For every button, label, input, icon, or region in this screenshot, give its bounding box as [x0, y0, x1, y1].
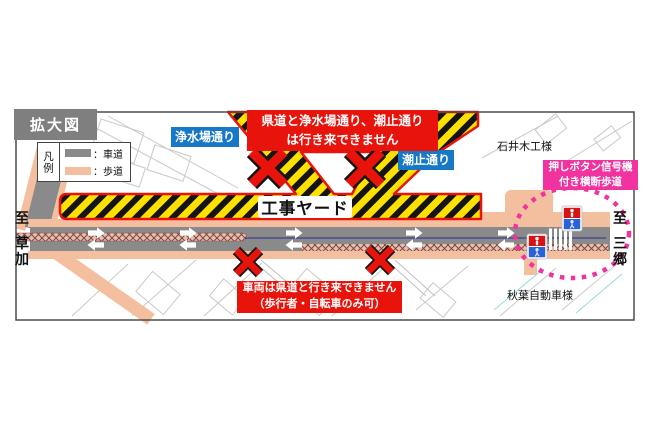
legend-item-label: ：車道 [93, 146, 123, 161]
direction-west-soka: 至 草加 [13, 210, 31, 267]
sidewalk-color-swatch [65, 167, 91, 175]
direction-to: 至 [13, 210, 31, 226]
direction-east-misato: 至 三郷 [611, 210, 629, 267]
legend-box: 凡例 ：車道 ：歩道 [37, 142, 131, 182]
construction-yard-label: 工事ヤード [258, 196, 352, 218]
legend-item-roadway: ：車道 [65, 146, 130, 161]
legend-items: ：車道 ：歩道 [60, 143, 130, 181]
push-button-crossing-label: 押しボタン信号機 付き横断歩道 [543, 160, 638, 190]
direction-place: 三郷 [611, 235, 629, 267]
legend-item-label: ：歩道 [93, 163, 123, 178]
main-roadway [16, 227, 610, 251]
closure-notice-top-line1: 県道と浄水場通り、潮止通り [247, 112, 438, 131]
push-button-crossing-line1: 押しボタン信号機 [543, 160, 638, 175]
map-title-badge: 拡大図 [14, 109, 97, 140]
direction-place: 草加 [13, 235, 31, 267]
legend-title: 凡例 [38, 143, 60, 181]
legend-item-sidewalk: ：歩道 [65, 163, 130, 178]
closure-notice-bottom: 車両は県道と行き来できません （歩行者・自転車のみ可） [237, 281, 402, 313]
closure-notice-top-line2: は行き来できません [247, 131, 438, 150]
push-button-crossing-line2: 付き横断歩道 [543, 175, 638, 190]
enlarged-construction-map: 拡大図 凡例 ：車道 ：歩道 浄水場通り 潮止通り 県道と浄水場通り、潮止通り … [0, 0, 650, 433]
street-label-josuijo: 浄水場通り [171, 127, 239, 147]
street-label-shiodome: 潮止通り [398, 150, 454, 170]
closure-notice-top: 県道と浄水場通り、潮止通り は行き来できません [247, 110, 438, 151]
landmark-ishii: 石井木工様 [497, 138, 552, 154]
roadway-color-swatch [65, 149, 91, 157]
closure-notice-bottom-line1: 車両は県道と行き来できません [237, 281, 402, 297]
pedestrian-signal-icon [527, 234, 547, 259]
direction-to: 至 [611, 210, 629, 226]
pedestrian-signal-icon [562, 206, 582, 231]
landmark-akiba: 秋葉自動車様 [507, 287, 573, 303]
closure-notice-bottom-line2: （歩行者・自転車のみ可） [237, 297, 402, 313]
